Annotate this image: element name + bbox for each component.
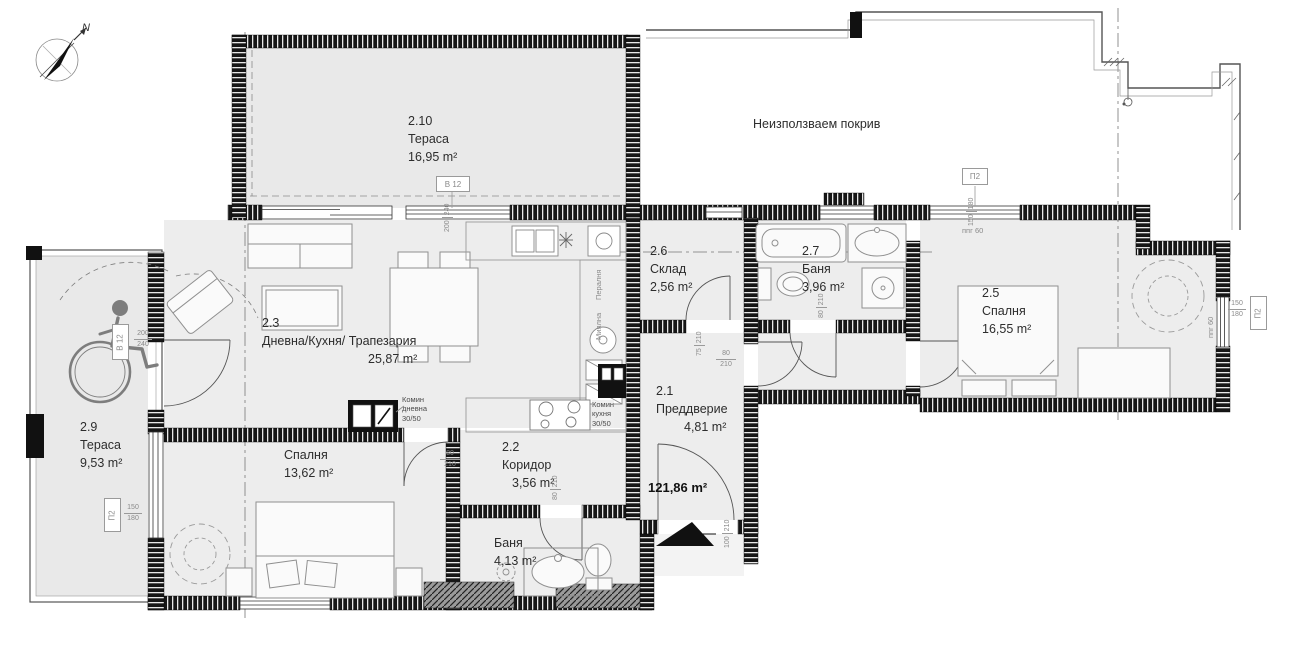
room-area: 3,56 m² bbox=[502, 474, 554, 492]
washer-label: Пералня bbox=[594, 270, 603, 300]
room-name: Преддверие bbox=[656, 400, 728, 418]
room-area: 4,13 m² bbox=[494, 552, 536, 570]
marker-p2-left-dims: 150180 bbox=[124, 504, 142, 523]
dishwasher-label: Миялна bbox=[594, 313, 603, 340]
door-height: 210 bbox=[444, 461, 456, 468]
door-dim-bath-upper: 80210 bbox=[816, 294, 827, 318]
door-height: 210 bbox=[720, 361, 732, 368]
marker-label: П2 bbox=[108, 510, 117, 520]
room-label-bath-upper: 2.7 Баня 3,96 m² bbox=[802, 242, 844, 296]
window-bedroom-left-bottom bbox=[240, 597, 330, 609]
door-width: 80 bbox=[552, 492, 559, 500]
door-dim-bath-lower: 80210 bbox=[550, 476, 561, 500]
room-label-living: 2.3 Дневна/Кухня/ Трапезария 25,87 m² bbox=[262, 314, 417, 368]
room-area: 16,95 m² bbox=[408, 148, 457, 166]
room-number: 2.9 bbox=[80, 418, 122, 436]
desk-right-icon bbox=[1078, 348, 1170, 398]
room-area: 4,81 m² bbox=[656, 418, 728, 436]
room-number: 2.7 bbox=[802, 242, 844, 260]
door-height: 210 bbox=[696, 332, 703, 344]
door-height: 210 bbox=[724, 520, 731, 532]
room-label-bedroom-left: Спалня 13,62 m² bbox=[284, 446, 333, 482]
marker-label: B 12 bbox=[445, 180, 461, 189]
stove-icon bbox=[530, 400, 590, 430]
room-label-terrace-210: 2.10 Тераса 16,95 m² bbox=[408, 112, 457, 166]
marker-p2-left: П2 bbox=[104, 498, 121, 532]
room-name: Тераса bbox=[80, 436, 122, 454]
room-label-bath-lower: Баня 4,13 m² bbox=[494, 534, 536, 570]
marker-p2-right: П2 bbox=[1250, 296, 1267, 330]
chimney-living-label: Комин дневна 30/50 bbox=[402, 395, 427, 423]
door-width: 75 bbox=[696, 348, 703, 356]
window-living bbox=[406, 206, 510, 219]
chimney-size: 30/50 bbox=[592, 419, 614, 428]
chimney-size: 30/50 bbox=[402, 414, 427, 423]
door-dim-bedroom-right: 80210 bbox=[716, 350, 736, 369]
chimney-title: Комин bbox=[402, 395, 427, 404]
room-area: 25,87 m² bbox=[262, 350, 417, 368]
chimney-sub: дневна bbox=[402, 404, 427, 413]
chimney-living-icon bbox=[348, 400, 404, 432]
door-dim-entrance: 100210 bbox=[722, 520, 733, 548]
chimney-kitchen-icon bbox=[598, 364, 626, 398]
sink-upper-icon bbox=[848, 224, 906, 262]
door-height: 210 bbox=[552, 476, 559, 488]
total-area-label: 121,86 m² bbox=[648, 480, 707, 495]
window-bedroom-left-side bbox=[149, 432, 163, 538]
room-area: 16,55 m² bbox=[982, 320, 1031, 338]
room-area: 2,56 m² bbox=[650, 278, 692, 296]
room-name: Баня bbox=[494, 534, 536, 552]
parapet-right-label: ппг 60 bbox=[1206, 317, 1215, 338]
marker-b12-left: B 12 bbox=[112, 324, 129, 360]
marker-label: П2 bbox=[1254, 308, 1263, 318]
compass-north-label: N bbox=[82, 22, 90, 34]
chimney-kitchen-label: Комин кухня 30/50 bbox=[592, 400, 614, 428]
marker-width: 150 bbox=[127, 504, 139, 511]
marker-b12-left-dims: 200240 bbox=[134, 330, 152, 349]
marker-height: 180 bbox=[1231, 311, 1243, 318]
marker-height: 180 bbox=[968, 198, 975, 210]
room-number: 2.5 bbox=[982, 284, 1031, 302]
room-label-bedroom-right: 2.5 Спалня 16,55 m² bbox=[982, 284, 1031, 338]
room-number: 2.10 bbox=[408, 112, 457, 130]
window-storage bbox=[706, 207, 742, 218]
floor-plan-canvas: N Неизползваем покрив 2.10 Тераса 16,95 … bbox=[0, 0, 1290, 660]
washer-bath-icon bbox=[862, 268, 904, 308]
room-name: Спалня bbox=[284, 446, 333, 464]
room-name: Коридор bbox=[502, 456, 554, 474]
marker-width: 200 bbox=[444, 220, 451, 232]
marker-label: П2 bbox=[970, 172, 980, 181]
door-height: 210 bbox=[818, 294, 825, 306]
room-number: 2.1 bbox=[656, 382, 728, 400]
room-name: Спалня bbox=[982, 302, 1031, 320]
room-label-corridor: 2.2 Коридор 3,56 m² bbox=[502, 438, 554, 492]
sofa-icon bbox=[248, 224, 352, 268]
roof-label: Неизползваем покрив bbox=[753, 115, 880, 133]
room-number: 2.2 bbox=[502, 438, 554, 456]
room-name: Склад bbox=[650, 260, 692, 278]
marker-height: 180 bbox=[127, 515, 139, 522]
door-width: 80 bbox=[446, 450, 454, 457]
marker-b12-top-dims: 200240 bbox=[442, 204, 453, 232]
marker-p2-top: П2 bbox=[962, 168, 988, 185]
parapet-top-label: ппг 60 bbox=[962, 226, 983, 235]
marker-width: 150 bbox=[968, 214, 975, 226]
room-number: 2.3 bbox=[262, 314, 417, 332]
window-bath-upper bbox=[820, 206, 874, 219]
marker-width: 200 bbox=[137, 330, 149, 337]
room-area: 9,53 m² bbox=[80, 454, 122, 472]
door-width: 100 bbox=[724, 536, 731, 548]
door-dim-storage: 75210 bbox=[694, 332, 705, 356]
room-name: Дневна/Кухня/ Трапезария bbox=[262, 332, 417, 350]
room-number: 2.6 bbox=[650, 242, 692, 260]
room-name: Баня bbox=[802, 260, 844, 278]
marker-p2-top-dims: 150180 bbox=[966, 198, 977, 226]
marker-height: 240 bbox=[444, 204, 451, 216]
floor-plan-drawing bbox=[0, 0, 1290, 660]
roof-outline bbox=[646, 12, 1240, 230]
marker-p2-right-dims: 150180 bbox=[1228, 300, 1246, 319]
room-label-storage: 2.6 Склад 2,56 m² bbox=[650, 242, 692, 296]
chimney-title: Комин bbox=[592, 400, 614, 409]
marker-height: 240 bbox=[137, 341, 149, 348]
room-label-terrace-29: 2.9 Тераса 9,53 m² bbox=[80, 418, 122, 472]
room-label-entry: 2.1 Преддверие 4,81 m² bbox=[656, 382, 728, 436]
marker-width: 150 bbox=[1231, 300, 1243, 307]
chimney-sub: кухня bbox=[592, 409, 614, 418]
marker-b12-top: B 12 bbox=[436, 176, 470, 192]
compass-icon bbox=[36, 28, 86, 81]
room-name: Тераса bbox=[408, 130, 457, 148]
marker-label: B 12 bbox=[116, 334, 125, 350]
room-area: 13,62 m² bbox=[284, 464, 333, 482]
window-terrace-door bbox=[262, 206, 392, 219]
door-dim-bedroom-left: 80210 bbox=[440, 450, 460, 469]
door-width: 80 bbox=[818, 310, 825, 318]
door-width: 80 bbox=[722, 350, 730, 357]
